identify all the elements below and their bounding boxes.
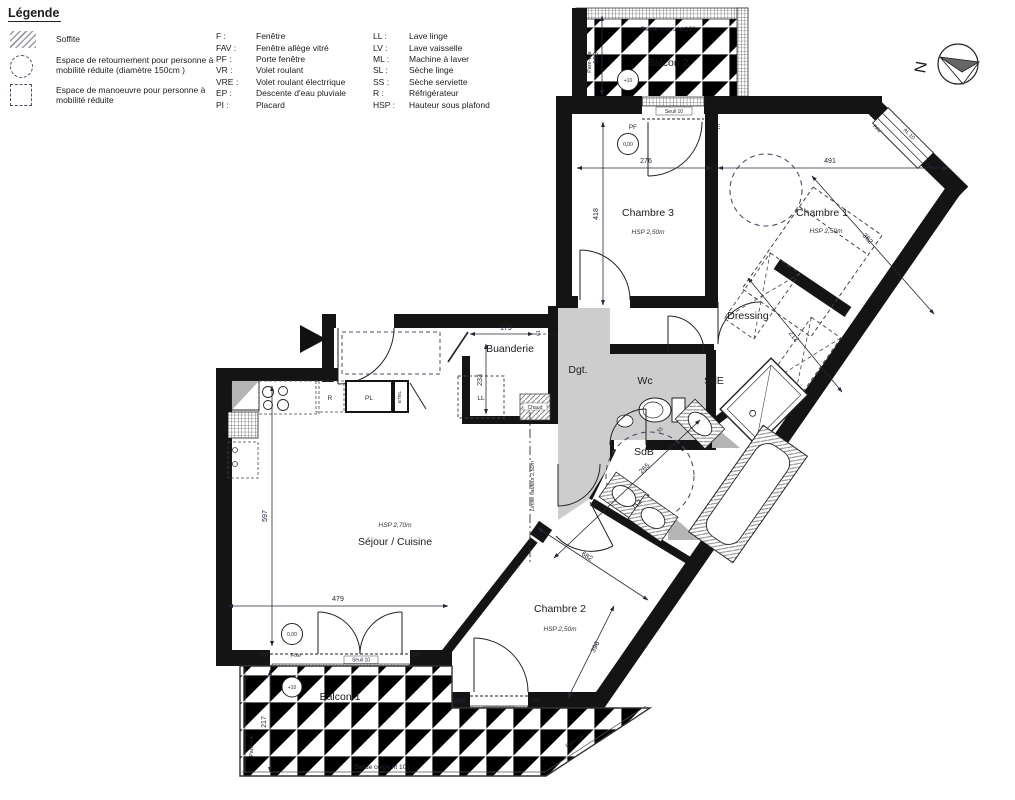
hsp-sejour: HSP 2,70m xyxy=(379,522,413,529)
room-label-buanderie: Buanderie xyxy=(486,343,534,355)
dim-479: 479 xyxy=(332,596,344,603)
dim-179: 179 xyxy=(500,325,512,332)
level-marker: 0,00 xyxy=(287,632,297,638)
north-letter: N xyxy=(912,60,931,74)
north-compass: N xyxy=(912,44,979,84)
garde-corps-label: Garde corps ht 101 xyxy=(354,764,410,771)
sejour-cuisine: HSP 2,70m Séjour / Cuisine 597 479 0,00 … xyxy=(228,381,448,646)
vre-label: VRE xyxy=(258,652,269,658)
washer-label: LL xyxy=(477,395,485,402)
dim-418: 418 xyxy=(593,208,600,220)
seuil-label: Seuil 10 xyxy=(665,109,683,115)
placard-label: PL xyxy=(365,395,373,402)
pare-vue-label: Pare-vue xyxy=(249,735,255,757)
dim-491: 491 xyxy=(824,158,836,165)
balcony-1: +10 Balcon 1 217 Pare-vue Garde corps ht… xyxy=(240,666,650,776)
room-label-balcon1: Balcon 1 xyxy=(320,691,361,703)
dim-265: 265 xyxy=(638,462,651,475)
water-heater-label: Chaud xyxy=(528,405,543,411)
room-label-chambre3: Chambre 3 xyxy=(622,207,674,219)
room-label-sde: SdE xyxy=(704,375,724,387)
balcony-2: Garde corps ht 101 Balcon 2 +10 Pare-vue… xyxy=(572,8,748,100)
pf-label: PF xyxy=(629,124,637,131)
dim-61: 61 xyxy=(536,330,542,336)
room-label-dressing: Dressing xyxy=(727,310,769,322)
dim-597: 597 xyxy=(262,510,269,522)
room-label-dgt: Dgt. xyxy=(568,364,587,376)
garde-corps-label: Garde corps ht 101 xyxy=(640,26,696,33)
level-marker: 0,00 xyxy=(623,142,633,148)
dim-233: 233 xyxy=(477,374,484,386)
dim-682: 682 xyxy=(580,551,594,563)
seuil-label: Seuil 10 xyxy=(352,658,370,664)
etel-label: ETEL xyxy=(397,391,403,403)
chambre-3: Chambre 3 HSP 2,50m 276 418 xyxy=(577,122,712,305)
hsp-chambre3: HSP 2,50m xyxy=(632,229,666,236)
dim-188: 188 xyxy=(593,52,600,64)
room-label-chambre1: Chambre 1 xyxy=(796,207,848,219)
vre-label: VRE xyxy=(453,698,467,705)
fridge-label: R xyxy=(328,395,333,402)
pf-label: PF xyxy=(532,698,540,705)
room-label-sdb: SdB xyxy=(634,446,654,458)
floor-plan-drawing: Garde corps ht 101 Balcon 2 +10 Pare-vue… xyxy=(0,0,1015,800)
room-label-sejour: Séjour / Cuisine xyxy=(358,536,432,548)
hsp-chambre1: HSP 2,50m xyxy=(810,228,844,235)
pf-label: PF xyxy=(413,652,421,659)
dim-276: 276 xyxy=(640,158,652,165)
level-marker: +10 xyxy=(624,78,633,84)
room-label-chambre2: Chambre 2 xyxy=(534,603,586,615)
hsp-chambre2: HSP 2,50m xyxy=(544,626,578,633)
level-marker: +10 xyxy=(288,685,297,691)
dim-212: 212 xyxy=(787,330,800,344)
floor-plan-page: Légende Soffite Espace de retournement p… xyxy=(0,0,1015,800)
limite-hauteur-label: Limite hauteur 2,50m xyxy=(530,461,536,511)
dim-217: 217 xyxy=(261,716,268,728)
room-label-balcon2: Balcon 2 xyxy=(648,57,689,69)
dim-396: 396 xyxy=(590,640,602,654)
fixe-label: Fixe xyxy=(291,653,301,659)
room-label-wc: Wc xyxy=(637,375,652,387)
